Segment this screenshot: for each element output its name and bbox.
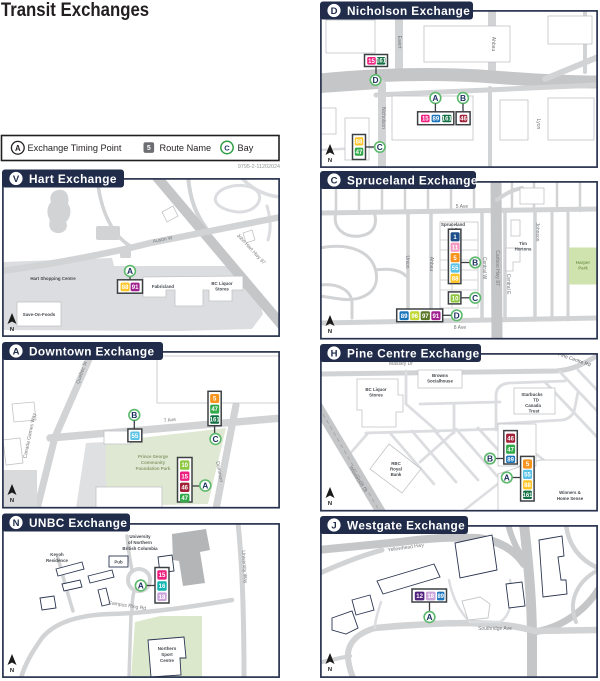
- svg-text:Union: Union: [404, 255, 410, 268]
- svg-text:Nicholson Exchange: Nicholson Exchange: [347, 4, 470, 18]
- svg-text:C: C: [331, 175, 338, 186]
- svg-text:Royal: Royal: [390, 467, 402, 472]
- svg-text:V: V: [13, 174, 20, 185]
- svg-text:Starbucks: Starbucks: [521, 392, 543, 397]
- svg-text:B: B: [472, 258, 478, 268]
- svg-text:RBC: RBC: [391, 461, 401, 466]
- svg-text:15: 15: [368, 59, 375, 65]
- svg-text:Stores: Stores: [369, 393, 383, 398]
- svg-text:88: 88: [356, 140, 363, 146]
- svg-text:C: C: [377, 142, 383, 152]
- svg-text:British Columbia: British Columbia: [122, 546, 158, 551]
- svg-text:Pub: Pub: [114, 560, 123, 565]
- svg-text:A: A: [432, 93, 438, 103]
- svg-text:Centre: Centre: [160, 658, 174, 663]
- svg-text:89: 89: [437, 594, 444, 600]
- svg-text:Hortons: Hortons: [515, 247, 532, 252]
- svg-text:5 Ave: 5 Ave: [456, 204, 469, 210]
- svg-text:N: N: [328, 501, 332, 507]
- svg-text:16: 16: [159, 584, 166, 590]
- svg-text:Trust: Trust: [529, 409, 540, 414]
- svg-text:Keyoh: Keyoh: [50, 552, 64, 557]
- svg-text:N: N: [10, 498, 14, 504]
- svg-text:N: N: [328, 329, 332, 335]
- svg-text:Campus Ring Rd: Campus Ring Rd: [108, 600, 147, 612]
- svg-text:47: 47: [181, 496, 188, 502]
- svg-text:University: University: [129, 534, 151, 539]
- svg-text:BC Liquor: BC Liquor: [211, 281, 233, 286]
- svg-text:UNBC Exchange: UNBC Exchange: [29, 516, 127, 530]
- svg-text:B: B: [460, 93, 466, 103]
- svg-text:161: 161: [442, 116, 453, 122]
- svg-text:H: H: [331, 348, 338, 359]
- svg-text:Sport: Sport: [161, 652, 173, 657]
- svg-text:55: 55: [524, 473, 531, 479]
- svg-text:12: 12: [416, 594, 423, 600]
- svg-text:Northern: Northern: [158, 646, 177, 651]
- svg-text:18: 18: [427, 594, 434, 600]
- svg-text:47: 47: [356, 150, 363, 156]
- svg-text:Southridge Ave: Southridge Ave: [478, 626, 512, 632]
- svg-text:Cariboo Hwy 97: Cariboo Hwy 97: [494, 250, 500, 286]
- svg-text:N: N: [10, 668, 14, 674]
- svg-text:A: A: [202, 481, 208, 491]
- svg-text:Residence: Residence: [46, 558, 69, 563]
- svg-text:Winners &: Winners &: [559, 490, 582, 495]
- svg-text:Johnson: Johnson: [534, 223, 540, 242]
- svg-text:BC Liquor: BC Liquor: [365, 387, 387, 392]
- svg-text:Westgate Exchange: Westgate Exchange: [347, 519, 465, 533]
- svg-text:89: 89: [401, 314, 408, 320]
- svg-text:C: C: [212, 434, 218, 444]
- svg-text:Ewert: Ewert: [396, 36, 402, 49]
- svg-text:97: 97: [422, 314, 429, 320]
- svg-text:161: 161: [376, 59, 387, 65]
- svg-text:46: 46: [460, 117, 467, 123]
- svg-text:96: 96: [411, 314, 418, 320]
- svg-text:9795-2-11202024: 9795-2-11202024: [238, 164, 280, 170]
- svg-text:Hart Exchange: Hart Exchange: [29, 172, 117, 186]
- svg-text:46: 46: [181, 485, 188, 491]
- svg-text:Bay: Bay: [238, 143, 254, 153]
- svg-text:7 Ave: 7 Ave: [163, 417, 176, 424]
- svg-text:A: A: [13, 346, 20, 357]
- svg-text:88: 88: [452, 277, 459, 283]
- svg-text:10: 10: [181, 463, 188, 469]
- svg-text:Spruceland: Spruceland: [441, 222, 465, 227]
- svg-text:Pine Centre Exchange: Pine Centre Exchange: [347, 347, 480, 361]
- svg-text:C: C: [472, 293, 478, 303]
- svg-text:A: A: [15, 144, 21, 153]
- svg-text:47: 47: [507, 447, 514, 453]
- svg-text:15: 15: [159, 573, 166, 579]
- svg-text:91: 91: [433, 314, 440, 320]
- svg-text:A: A: [504, 473, 510, 483]
- svg-text:88: 88: [524, 483, 531, 489]
- svg-text:B: B: [487, 454, 493, 464]
- svg-text:Ahbau: Ahbau: [490, 37, 496, 52]
- svg-text:55: 55: [452, 266, 459, 272]
- svg-text:N: N: [13, 518, 20, 529]
- svg-text:11: 11: [452, 245, 459, 251]
- svg-text:Nicholson: Nicholson: [380, 107, 386, 129]
- svg-text:D: D: [454, 310, 460, 320]
- svg-text:89: 89: [507, 458, 514, 464]
- svg-text:Central E: Central E: [505, 274, 511, 296]
- svg-text:88: 88: [122, 285, 129, 291]
- svg-text:Fabricland: Fabricland: [152, 284, 175, 289]
- svg-text:Route Name: Route Name: [160, 143, 212, 153]
- svg-text:Downtown Exchange: Downtown Exchange: [29, 345, 154, 359]
- svg-text:D: D: [372, 75, 378, 85]
- svg-text:Socialhouse: Socialhouse: [427, 379, 453, 384]
- svg-text:Foundation Park: Foundation Park: [136, 466, 171, 471]
- svg-text:Harper: Harper: [576, 260, 590, 265]
- svg-text:A: A: [127, 266, 133, 276]
- svg-text:Ahbau: Ahbau: [428, 257, 434, 272]
- svg-text:J: J: [331, 520, 336, 531]
- svg-text:TD: TD: [533, 398, 539, 403]
- svg-text:Bank: Bank: [391, 472, 402, 477]
- svg-text:C: C: [224, 143, 230, 152]
- svg-text:161: 161: [210, 418, 221, 424]
- svg-text:A: A: [138, 581, 144, 591]
- svg-text:Transit Exchanges: Transit Exchanges: [1, 0, 149, 20]
- svg-text:18: 18: [159, 595, 166, 601]
- svg-text:Prince George: Prince George: [138, 454, 169, 459]
- svg-text:Stores: Stores: [215, 287, 229, 292]
- svg-text:N: N: [10, 327, 14, 333]
- svg-text:8 Ave: 8 Ave: [454, 325, 467, 331]
- svg-text:Tim: Tim: [519, 241, 527, 246]
- svg-text:5: 5: [147, 145, 151, 152]
- svg-text:10: 10: [452, 297, 459, 303]
- svg-text:15: 15: [422, 117, 429, 123]
- svg-text:161: 161: [522, 493, 533, 499]
- svg-text:46: 46: [507, 436, 514, 442]
- svg-text:Lyon: Lyon: [535, 119, 541, 130]
- svg-text:Central W: Central W: [481, 257, 487, 280]
- svg-text:B: B: [131, 410, 137, 420]
- svg-text:Hart Shopping Centre: Hart Shopping Centre: [30, 276, 76, 281]
- svg-text:89: 89: [433, 117, 440, 123]
- svg-text:N: N: [328, 158, 332, 164]
- svg-text:N: N: [328, 667, 332, 673]
- svg-text:91: 91: [132, 285, 139, 291]
- svg-text:15: 15: [181, 474, 188, 480]
- svg-text:Canada: Canada: [525, 403, 541, 408]
- svg-text:Exchange Timing Point: Exchange Timing Point: [28, 143, 122, 153]
- svg-text:Spruceland Exchange: Spruceland Exchange: [347, 174, 478, 188]
- svg-text:Browns: Browns: [432, 373, 449, 378]
- svg-text:47: 47: [211, 407, 218, 413]
- svg-text:55: 55: [132, 434, 139, 440]
- svg-text:of Northern: of Northern: [128, 540, 152, 545]
- svg-text:Community: Community: [141, 460, 166, 465]
- svg-text:D: D: [331, 6, 338, 17]
- svg-text:Save-On-Foods: Save-On-Foods: [23, 312, 56, 317]
- svg-text:A: A: [426, 612, 432, 622]
- svg-text:Home Sense: Home Sense: [557, 496, 584, 501]
- svg-text:Park: Park: [578, 266, 588, 271]
